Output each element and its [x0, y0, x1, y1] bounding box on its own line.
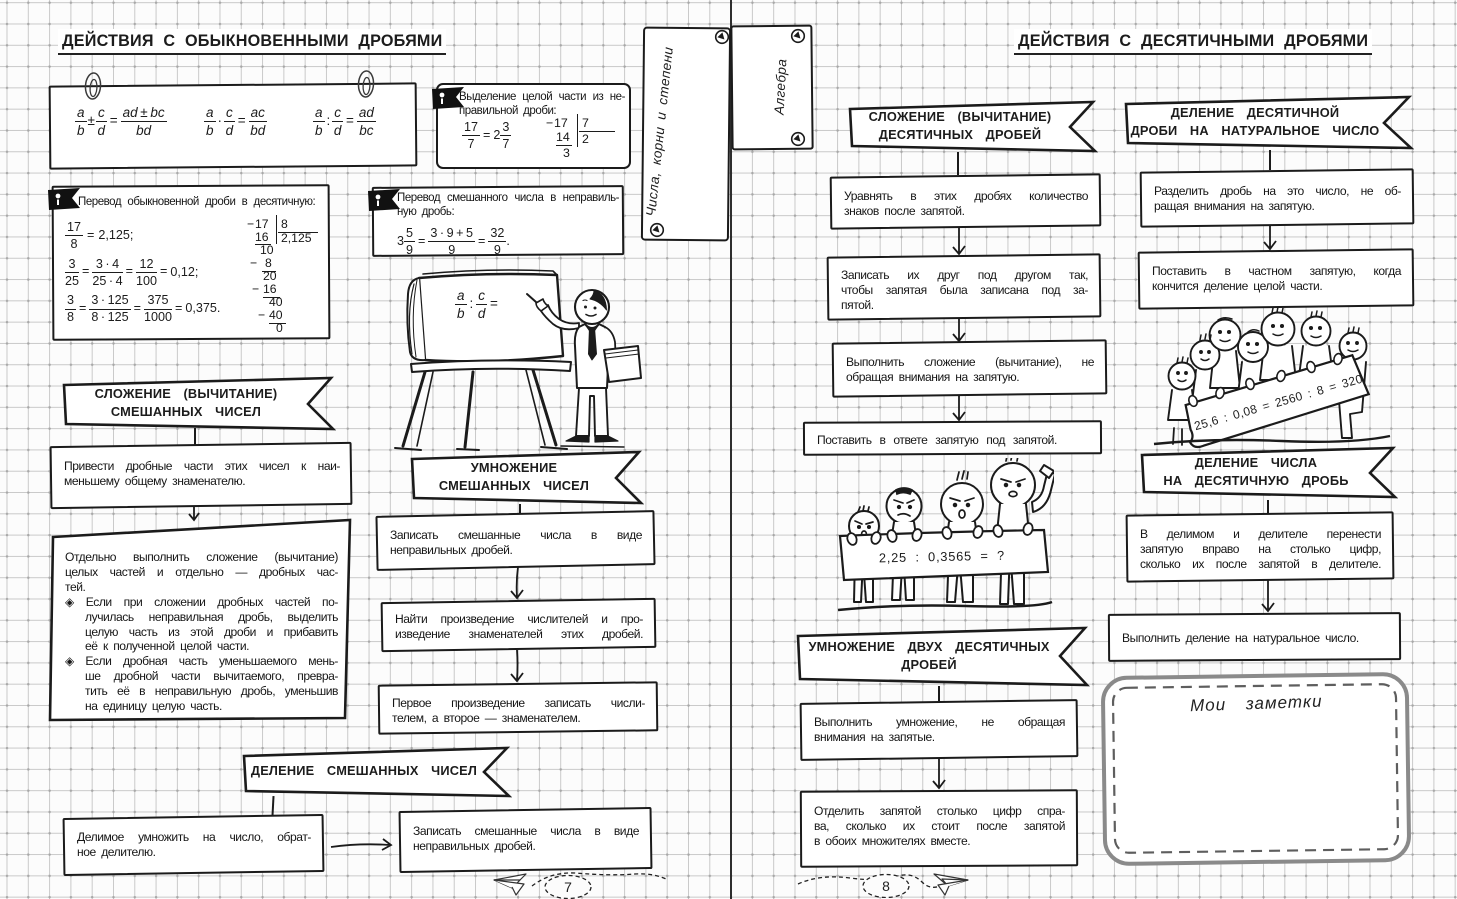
svg-text:2,25 : 0,3565 = ?: 2,25 : 0,3565 = ? — [879, 548, 1005, 566]
svg-text:8: 8 — [882, 878, 890, 894]
svg-text:7: 7 — [564, 879, 572, 895]
